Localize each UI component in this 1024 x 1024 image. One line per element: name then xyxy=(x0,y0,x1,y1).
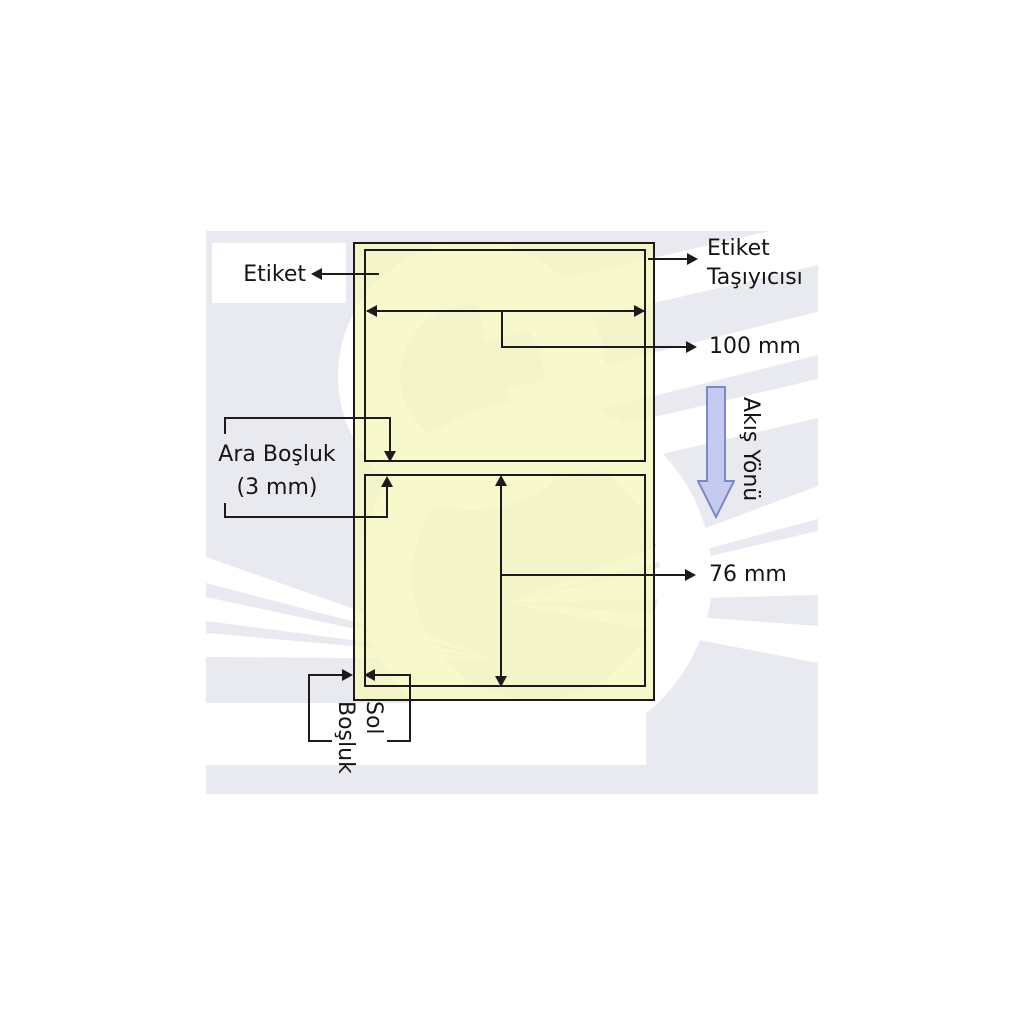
gap-bracket-line xyxy=(389,418,391,452)
carrier-callout-line xyxy=(648,258,688,260)
arrowhead-down-icon xyxy=(495,676,507,687)
flow-direction-text: Akış Yönü xyxy=(736,397,764,507)
gap-bracket-line xyxy=(224,417,391,419)
left-margin-bracket xyxy=(409,674,411,742)
arrowhead-left-icon xyxy=(366,305,377,317)
gap-bracket-line xyxy=(386,487,388,518)
gap-bracket-line xyxy=(224,418,226,434)
left-margin-line xyxy=(308,674,344,676)
diagram-stage: Etiket Etiket Taşıyıcısı 100 mm Ara Boşl… xyxy=(0,0,1024,1024)
left-margin-line xyxy=(373,674,411,676)
arrowhead-right-icon xyxy=(342,669,353,681)
arrowhead-up-icon xyxy=(495,475,507,486)
gap-text-line1: Ara Boşluk xyxy=(203,438,351,471)
width-dimension-text: 100 mm xyxy=(709,333,801,361)
arrowhead-right-icon xyxy=(634,305,645,317)
arrowhead-right-icon xyxy=(686,341,697,353)
width-leader-line xyxy=(501,311,503,347)
left-margin-bracket xyxy=(308,740,332,742)
carrier-text: Etiket Taşıyıcısı xyxy=(707,234,803,292)
arrowhead-down-icon xyxy=(384,451,396,462)
gap-text-line2: (3 mm) xyxy=(203,471,351,504)
arrowhead-right-icon xyxy=(685,569,696,581)
etiket-callout-line xyxy=(320,273,379,275)
label-top xyxy=(364,249,646,462)
width-dimension-line xyxy=(367,310,644,312)
left-margin-text-line1: Sol xyxy=(359,701,387,779)
left-margin-bracket xyxy=(308,674,310,742)
carrier-text-line2: Taşıyıcısı xyxy=(707,263,803,292)
label-text: Etiket xyxy=(191,261,306,289)
left-margin-text: Sol Boşluk xyxy=(331,701,387,779)
left-margin-bracket xyxy=(387,740,411,742)
height-dimension-text: 76 mm xyxy=(709,561,787,589)
height-dimension-line xyxy=(500,477,502,686)
arrowhead-right-icon xyxy=(687,253,698,265)
flow-direction-arrow-icon xyxy=(697,386,735,519)
gap-bracket-line xyxy=(224,516,388,518)
left-margin-text-line2: Boşluk xyxy=(331,701,359,779)
height-leader-line xyxy=(501,574,686,576)
width-leader-line xyxy=(501,346,687,348)
arrowhead-up-icon xyxy=(381,476,393,487)
label-bottom xyxy=(364,474,646,687)
carrier-text-line1: Etiket xyxy=(707,234,803,263)
gap-text: Ara Boşluk (3 mm) xyxy=(203,438,351,504)
